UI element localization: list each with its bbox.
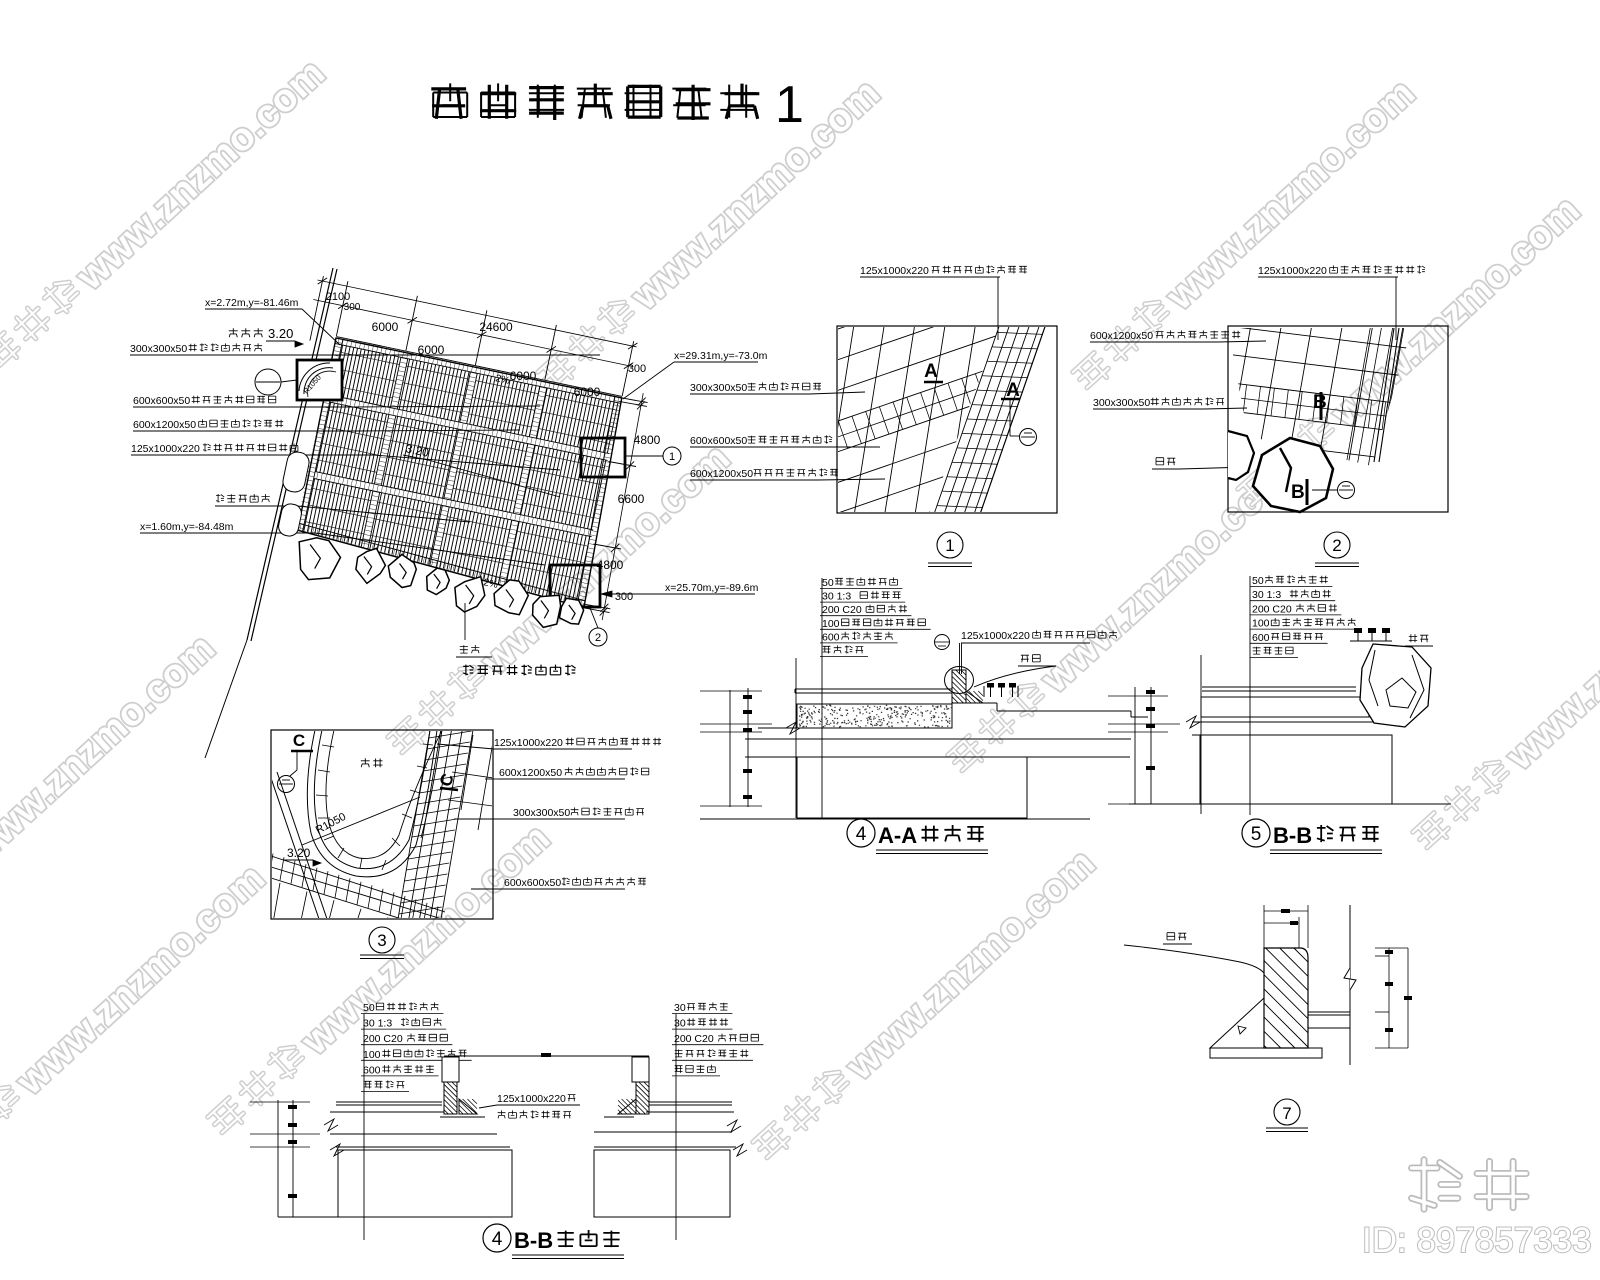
svg-text:x=2.72m,y=-81.46m: x=2.72m,y=-81.46m [205, 297, 299, 309]
svg-text:300: 300 [615, 591, 633, 603]
svg-text:7: 7 [1282, 1104, 1291, 1123]
svg-text:B: B [1291, 482, 1305, 503]
svg-text:ID: 897857333: ID: 897857333 [1362, 1221, 1592, 1260]
svg-text:3.20: 3.20 [287, 846, 311, 860]
svg-text:600x600x50: 600x600x50 [133, 395, 190, 407]
svg-text:125x1000x220: 125x1000x220 [131, 443, 200, 455]
svg-text:300x300x50: 300x300x50 [513, 807, 570, 819]
svg-text:200 C20: 200 C20 [674, 1033, 714, 1045]
svg-text:100: 100 [1252, 618, 1270, 630]
svg-text:600: 600 [363, 1064, 381, 1076]
svg-text:600: 600 [822, 631, 840, 643]
svg-text:B-B: B-B [1273, 823, 1312, 848]
svg-text:1: 1 [775, 76, 804, 134]
svg-text:100: 100 [822, 618, 840, 630]
svg-text:125x1000x220: 125x1000x220 [961, 630, 1030, 642]
svg-text:C: C [293, 731, 305, 750]
svg-text:1: 1 [945, 536, 954, 555]
svg-text:B: B [1313, 392, 1327, 413]
svg-text:x=25.70m,y=-89.6m: x=25.70m,y=-89.6m [665, 582, 759, 594]
svg-text:30 1:3: 30 1:3 [363, 1018, 392, 1030]
svg-text:6600: 6600 [618, 492, 645, 506]
svg-text:5: 5 [1251, 824, 1262, 845]
svg-text:x=1.60m,y=-84.48m: x=1.60m,y=-84.48m [140, 521, 234, 533]
svg-text:30 1:3: 30 1:3 [1252, 589, 1281, 601]
svg-text:50: 50 [1252, 575, 1264, 587]
svg-text:600: 600 [1252, 632, 1270, 644]
svg-text:600x1200x50: 600x1200x50 [1090, 330, 1153, 342]
svg-text:300x300x50: 300x300x50 [1093, 397, 1150, 409]
svg-text:x=29.31m,y=-73.0m: x=29.31m,y=-73.0m [674, 350, 768, 362]
svg-text:3: 3 [377, 931, 386, 950]
svg-text:125x1000x220: 125x1000x220 [860, 265, 929, 277]
svg-text:24600: 24600 [479, 320, 513, 334]
svg-text:1: 1 [669, 451, 675, 463]
svg-text:600x600x50: 600x600x50 [504, 877, 561, 889]
svg-text:6000: 6000 [372, 320, 399, 334]
svg-text:100: 100 [363, 1049, 381, 1061]
svg-text:B-B: B-B [514, 1228, 553, 1253]
svg-text:50: 50 [363, 1002, 375, 1014]
svg-text:200 C20: 200 C20 [1252, 603, 1292, 615]
svg-text:A: A [924, 361, 938, 382]
svg-text:3.20: 3.20 [268, 326, 293, 341]
svg-text:4800: 4800 [634, 433, 661, 447]
svg-text:300x300x50: 300x300x50 [130, 343, 187, 355]
svg-text:A-A: A-A [878, 823, 917, 848]
svg-text:600x600x50: 600x600x50 [690, 435, 747, 447]
svg-text:300: 300 [628, 363, 646, 375]
svg-text:125x1000x220: 125x1000x220 [497, 1093, 566, 1105]
svg-text:2: 2 [1332, 536, 1341, 555]
svg-text:600x1200x50: 600x1200x50 [133, 419, 196, 431]
svg-text:6000: 6000 [510, 369, 537, 383]
svg-text:300: 300 [344, 302, 361, 313]
svg-text:4: 4 [492, 1229, 503, 1250]
svg-text:30 1:3: 30 1:3 [822, 591, 851, 603]
svg-text:600x1200x50: 600x1200x50 [690, 468, 753, 480]
svg-text:300x300x50: 300x300x50 [690, 382, 747, 394]
svg-text:2: 2 [595, 632, 601, 644]
svg-text:50: 50 [822, 577, 834, 589]
svg-text:30: 30 [674, 1002, 686, 1014]
svg-text:125x1000x220: 125x1000x220 [494, 737, 563, 749]
svg-text:6000: 6000 [574, 385, 601, 399]
svg-text:600x1200x50: 600x1200x50 [499, 767, 562, 779]
svg-text:4: 4 [856, 824, 867, 845]
svg-text:125x1000x220: 125x1000x220 [1258, 265, 1327, 277]
svg-text:200 C20: 200 C20 [822, 604, 862, 616]
svg-text:200 C20: 200 C20 [363, 1033, 403, 1045]
